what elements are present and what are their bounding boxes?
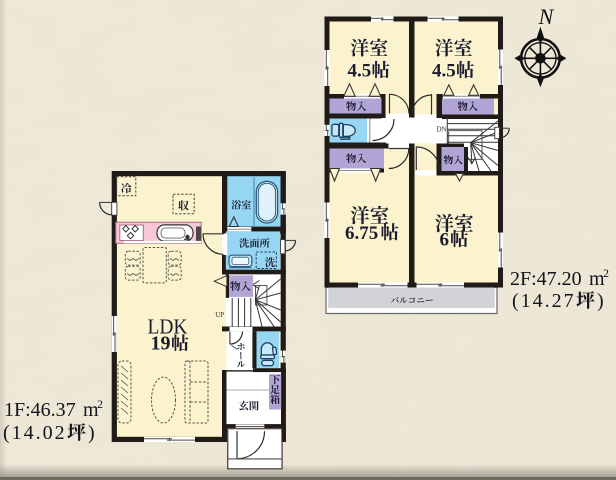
svg-text:): ) bbox=[88, 422, 95, 444]
svg-text:DN: DN bbox=[437, 126, 447, 134]
svg-text:6: 6 bbox=[440, 230, 450, 251]
svg-text:N: N bbox=[538, 4, 555, 29]
svg-text:): ) bbox=[597, 290, 604, 312]
svg-text:UP: UP bbox=[215, 312, 224, 319]
svg-text:2: 2 bbox=[97, 397, 103, 411]
svg-text:1F:46.37: 1F:46.37 bbox=[4, 399, 76, 421]
svg-text:(14.27: (14.27 bbox=[512, 290, 576, 312]
svg-text:2: 2 bbox=[603, 266, 609, 280]
svg-text:4.5: 4.5 bbox=[432, 61, 456, 82]
svg-text:(14.02: (14.02 bbox=[3, 422, 67, 444]
svg-text:19: 19 bbox=[151, 333, 171, 355]
svg-text:6.75: 6.75 bbox=[345, 223, 378, 244]
svg-text:2F:47.20: 2F:47.20 bbox=[510, 268, 582, 290]
svg-text:4.5: 4.5 bbox=[348, 61, 372, 82]
